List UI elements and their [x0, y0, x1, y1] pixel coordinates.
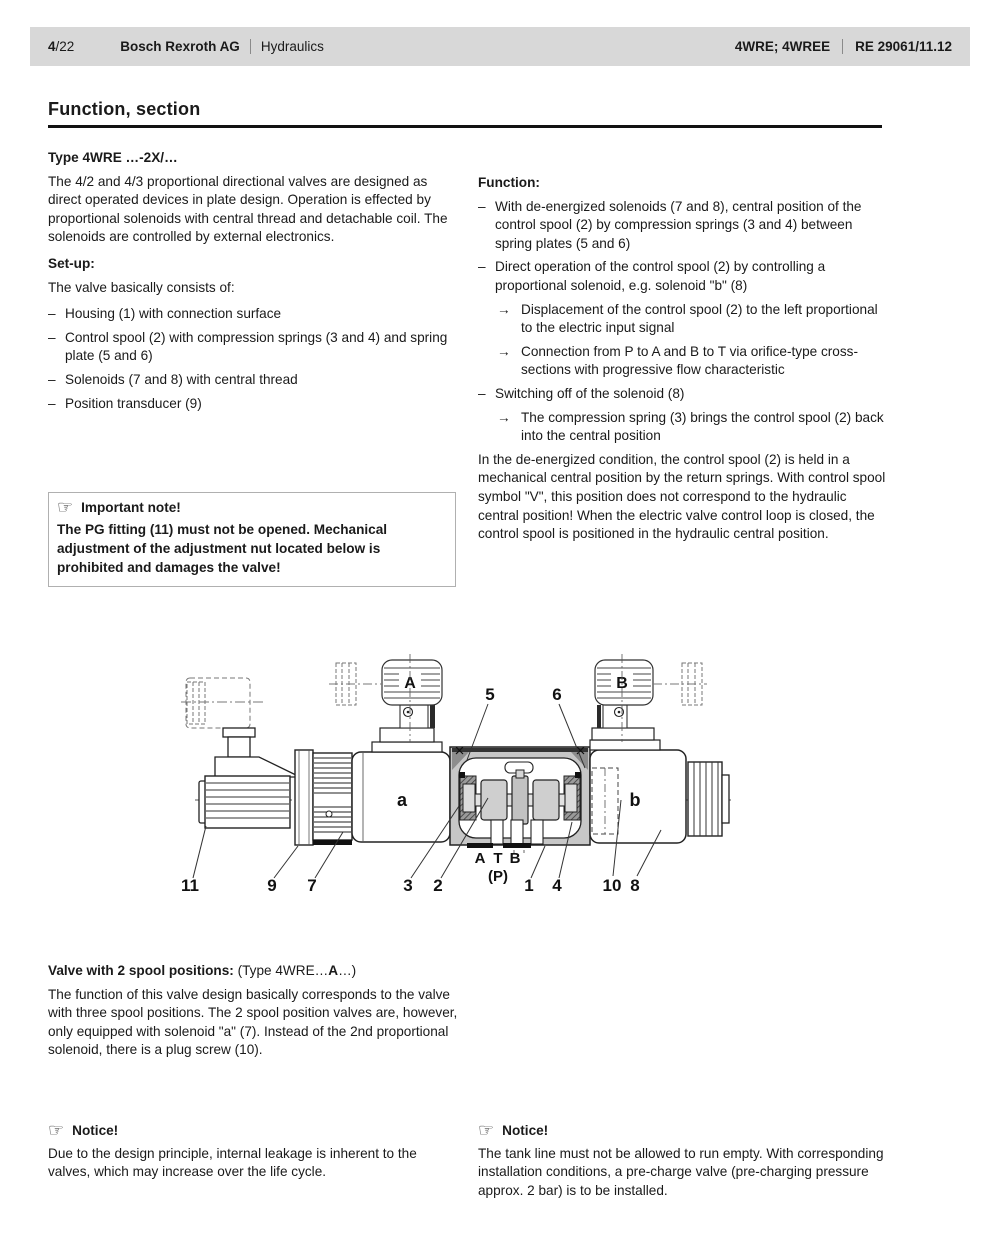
setup-heading: Set-up: [48, 255, 460, 274]
sub-list-item: → Connection from P to A and B to T via … [478, 343, 888, 380]
two-spool-section: Valve with 2 spool positions: (Type 4WRE… [48, 962, 462, 1060]
type-heading: Type 4WRE …-2X/… [48, 149, 460, 168]
position-transducer [199, 776, 290, 828]
valve-cross-section-diagram: a A [173, 646, 745, 912]
solenoid-a-label: a [397, 790, 408, 810]
header-right: 4WRE; 4WREE RE 29061/11.12 [735, 39, 952, 54]
pg-fitting [215, 728, 300, 777]
closing-paragraph: In the de-energized condition, the contr… [478, 451, 888, 544]
valve-housing [450, 747, 590, 854]
notice-right-body: The tank line must not be allowed to run… [478, 1145, 888, 1201]
intro-paragraph: The 4/2 and 4/3 proportional directional… [48, 173, 460, 247]
page-header: 4/22 Bosch Rexroth AG Hydraulics 4WRE; 4… [30, 27, 970, 66]
callout-11: 11 [181, 876, 199, 895]
division-name: Hydraulics [261, 39, 324, 54]
phantom-connector-left [181, 678, 265, 728]
solenoid-a: a [352, 752, 450, 842]
pointing-hand-icon: ☞ [57, 499, 73, 517]
page-title: Function, section [48, 99, 200, 120]
callout-10: 10 [603, 876, 622, 895]
important-note-box: ☞ Important note! The PG fitting (11) mu… [48, 492, 456, 587]
port-p-label: (P) [488, 868, 508, 885]
list-item: – Control spool (2) with compression spr… [48, 329, 460, 366]
list-item: – Position transducer (9) [48, 395, 460, 414]
company-name: Bosch Rexroth AG [120, 39, 240, 54]
important-note-body: The PG fitting (11) must not be opened. … [57, 520, 445, 577]
notice-left: ☞ Notice! Due to the design principle, i… [48, 1122, 460, 1182]
notice-right-title: Notice! [502, 1122, 548, 1141]
port-b-label: B [510, 850, 521, 867]
list-item: – Solenoids (7 and 8) with central threa… [48, 371, 460, 390]
sub-list-item: → Displacement of the control spool (2) … [478, 301, 888, 338]
notice-left-title: Notice! [72, 1122, 118, 1141]
notice-right-header: ☞ Notice! [478, 1122, 888, 1141]
two-spool-heading: Valve with 2 spool positions: (Type 4WRE… [48, 962, 462, 981]
important-note-header: ☞ Important note! [57, 498, 445, 517]
solenoid-a-tube [313, 753, 352, 845]
callout-2: 2 [433, 876, 442, 895]
callout-3: 3 [403, 876, 412, 895]
right-column: Function: – With de-energized solenoids … [478, 174, 888, 544]
callout-5: 5 [485, 685, 494, 704]
list-item: – Direct operation of the control spool … [478, 258, 888, 295]
document-number: RE 29061/11.12 [855, 39, 952, 54]
adjustment-ring [295, 750, 313, 845]
list-item: – Housing (1) with connection surface [48, 305, 460, 324]
solenoid-b: b [590, 750, 729, 843]
solenoid-b-label: b [630, 790, 641, 810]
pointing-hand-icon: ☞ [478, 1122, 494, 1140]
pointing-hand-icon: ☞ [48, 1122, 64, 1140]
port-a-label: A [475, 850, 486, 867]
callout-1: 1 [524, 876, 533, 895]
notice-left-body: Due to the design principle, internal le… [48, 1145, 460, 1182]
callout-6: 6 [552, 685, 561, 704]
setup-intro: The valve basically consists of: [48, 279, 460, 298]
connector-a: A [329, 654, 442, 752]
header-divider-2 [842, 39, 843, 54]
header-divider [250, 39, 251, 54]
connector-b: B [590, 654, 707, 750]
product-name: 4WRE; 4WREE [735, 39, 830, 54]
notice-left-header: ☞ Notice! [48, 1122, 460, 1141]
valve-diagram-svg: a A [173, 646, 745, 912]
callout-9: 9 [267, 876, 276, 895]
important-note-title: Important note! [81, 498, 181, 517]
list-item: – Switching off of the solenoid (8) [478, 385, 888, 404]
callout-8: 8 [630, 876, 639, 895]
notice-right: ☞ Notice! The tank line must not be allo… [478, 1122, 888, 1200]
callout-4: 4 [552, 876, 562, 895]
port-t-label: T [493, 850, 502, 867]
callout-7: 7 [307, 876, 316, 895]
left-column: Type 4WRE …-2X/… The 4/2 and 4/3 proport… [48, 149, 460, 418]
sub-list-item: → The compression spring (3) brings the … [478, 409, 888, 446]
page-number: 4/22 [48, 39, 74, 54]
header-left: 4/22 Bosch Rexroth AG Hydraulics [48, 39, 324, 54]
list-item: – With de-energized solenoids (7 and 8),… [478, 198, 888, 254]
two-spool-body: The function of this valve design basica… [48, 986, 462, 1060]
title-rule [48, 125, 882, 128]
function-heading: Function: [478, 174, 888, 193]
datasheet-page: { "header": { "page": "4", "page_total":… [0, 0, 1000, 1248]
